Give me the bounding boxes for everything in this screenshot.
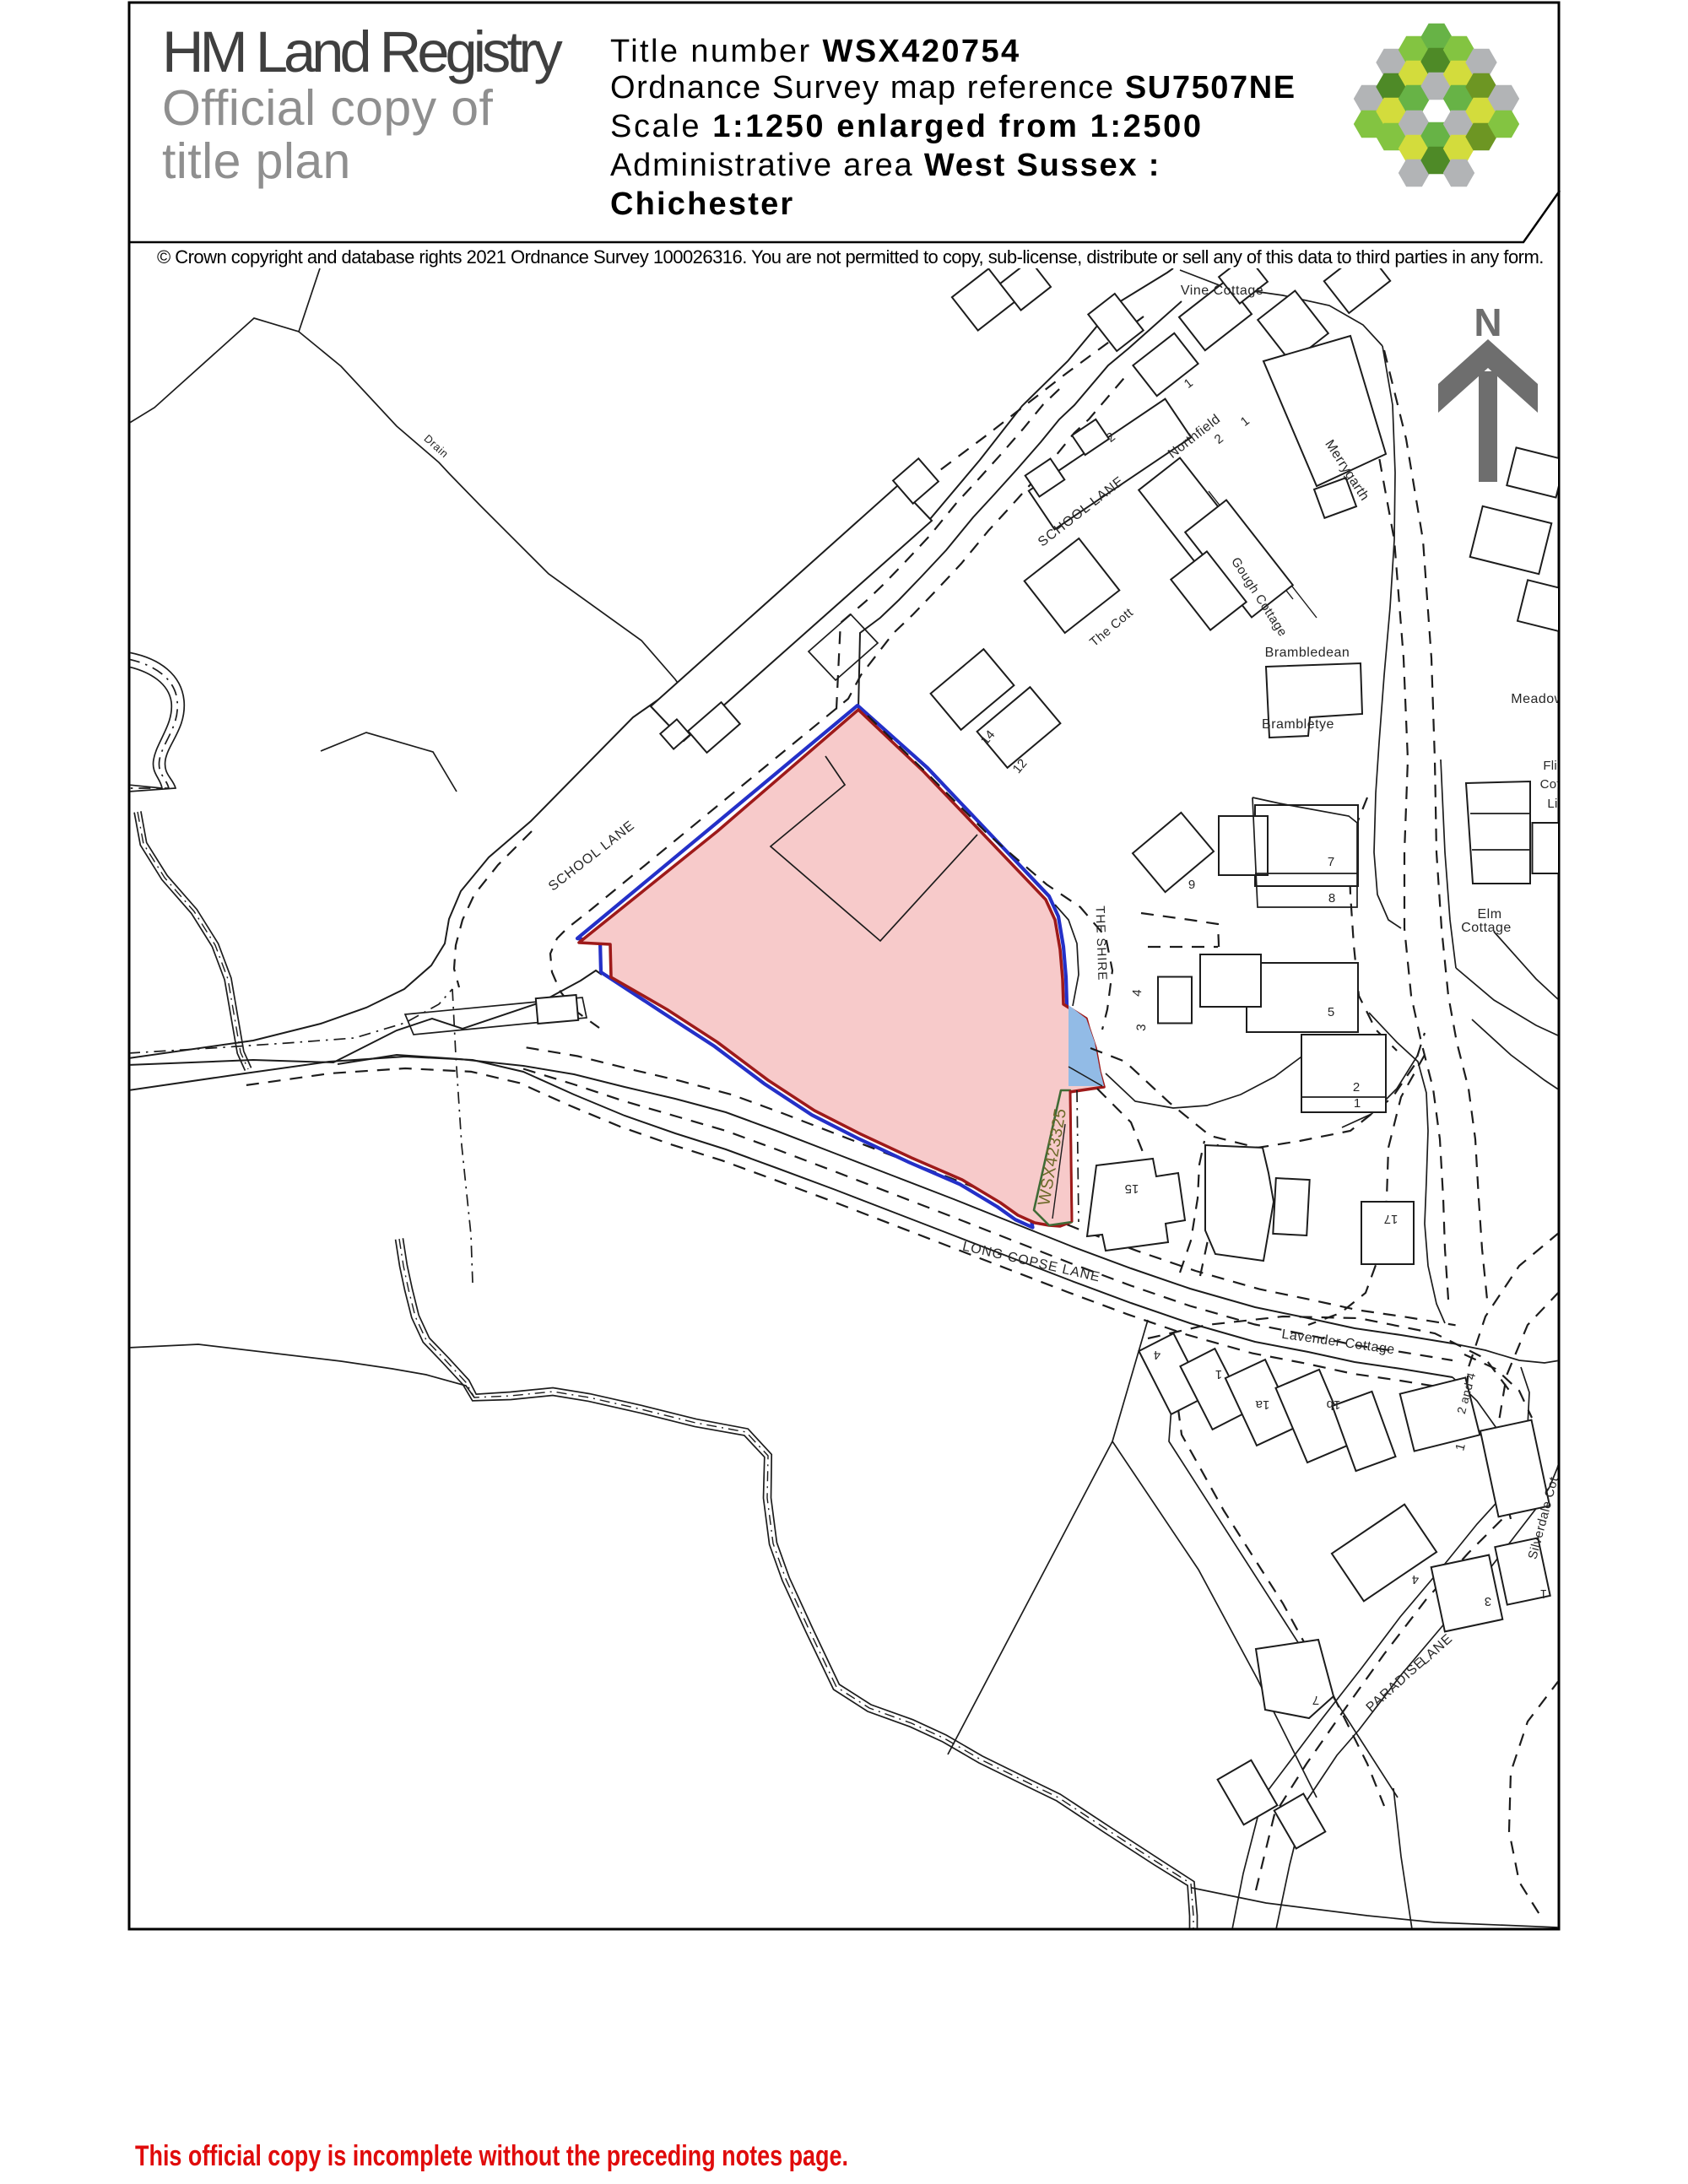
svg-text:Cottage: Cottage: [1461, 921, 1512, 935]
svg-text:1: 1: [1453, 1442, 1469, 1452]
svg-text:3: 3: [1134, 1024, 1150, 1032]
svg-text:Ordnance Survey map reference: Ordnance Survey map reference SU7507NE: [610, 70, 1296, 105]
svg-text:Scale 1:1250 enlarged from 1:2: Scale 1:1250 enlarged from 1:2500: [610, 109, 1204, 144]
svg-text:Chichester: Chichester: [610, 187, 794, 222]
svg-text:Official copy of: Official copy of: [162, 80, 493, 136]
svg-text:1a: 1a: [1255, 1397, 1269, 1412]
svg-text:HM Land Registry: HM Land Registry: [162, 19, 563, 84]
svg-text:15: 15: [1125, 1181, 1139, 1196]
svg-text:1: 1: [1182, 376, 1196, 392]
svg-text:Vine Cottage: Vine Cottage: [1181, 284, 1263, 298]
svg-text:4: 4: [1130, 989, 1145, 997]
svg-text:1: 1: [1238, 414, 1252, 430]
svg-text:1b: 1b: [1327, 1397, 1341, 1412]
svg-text:© Crown copyright and database: © Crown copyright and database rights 20…: [157, 246, 1544, 268]
svg-text:8: 8: [1328, 891, 1335, 905]
svg-text:THE SHIRE: THE SHIRE: [1092, 905, 1109, 981]
svg-text:2: 2: [1212, 431, 1226, 447]
svg-text:1: 1: [1354, 1096, 1361, 1111]
svg-text:Administrative area West Susse: Administrative area West Sussex :: [610, 148, 1160, 183]
svg-text:N: N: [1474, 300, 1501, 344]
svg-text:2: 2: [1353, 1080, 1360, 1095]
svg-text:17: 17: [1384, 1212, 1399, 1226]
svg-text:9: 9: [1188, 878, 1195, 892]
svg-text:3: 3: [1485, 1594, 1491, 1608]
svg-text:7: 7: [1328, 855, 1334, 869]
svg-text:7: 7: [1312, 1693, 1319, 1707]
svg-text:The Cott: The Cott: [1087, 605, 1136, 650]
svg-text:1: 1: [1540, 1587, 1547, 1601]
svg-text:PARADISE: PARADISE: [1364, 1655, 1429, 1715]
svg-text:Title number WSX420754: Title number WSX420754: [610, 34, 1021, 69]
svg-text:Elm: Elm: [1477, 907, 1501, 922]
svg-text:Brambletye: Brambletye: [1262, 717, 1334, 732]
svg-text:Flin: Flin: [1543, 759, 1564, 773]
svg-text:Meadow: Meadow: [1511, 692, 1564, 706]
svg-text:Brambledean: Brambledean: [1265, 646, 1350, 660]
svg-text:title plan: title plan: [162, 133, 351, 189]
svg-text:This official copy is incomple: This official copy is incomplete without…: [135, 2140, 848, 2172]
svg-text:4: 4: [1412, 1572, 1419, 1587]
svg-text:Cott: Cott: [1540, 777, 1565, 792]
svg-text:1: 1: [1215, 1367, 1222, 1381]
svg-text:5: 5: [1328, 1005, 1334, 1019]
svg-text:4: 4: [1154, 1348, 1160, 1362]
svg-text:Litt: Litt: [1547, 797, 1566, 811]
svg-text:Drain: Drain: [422, 432, 452, 461]
